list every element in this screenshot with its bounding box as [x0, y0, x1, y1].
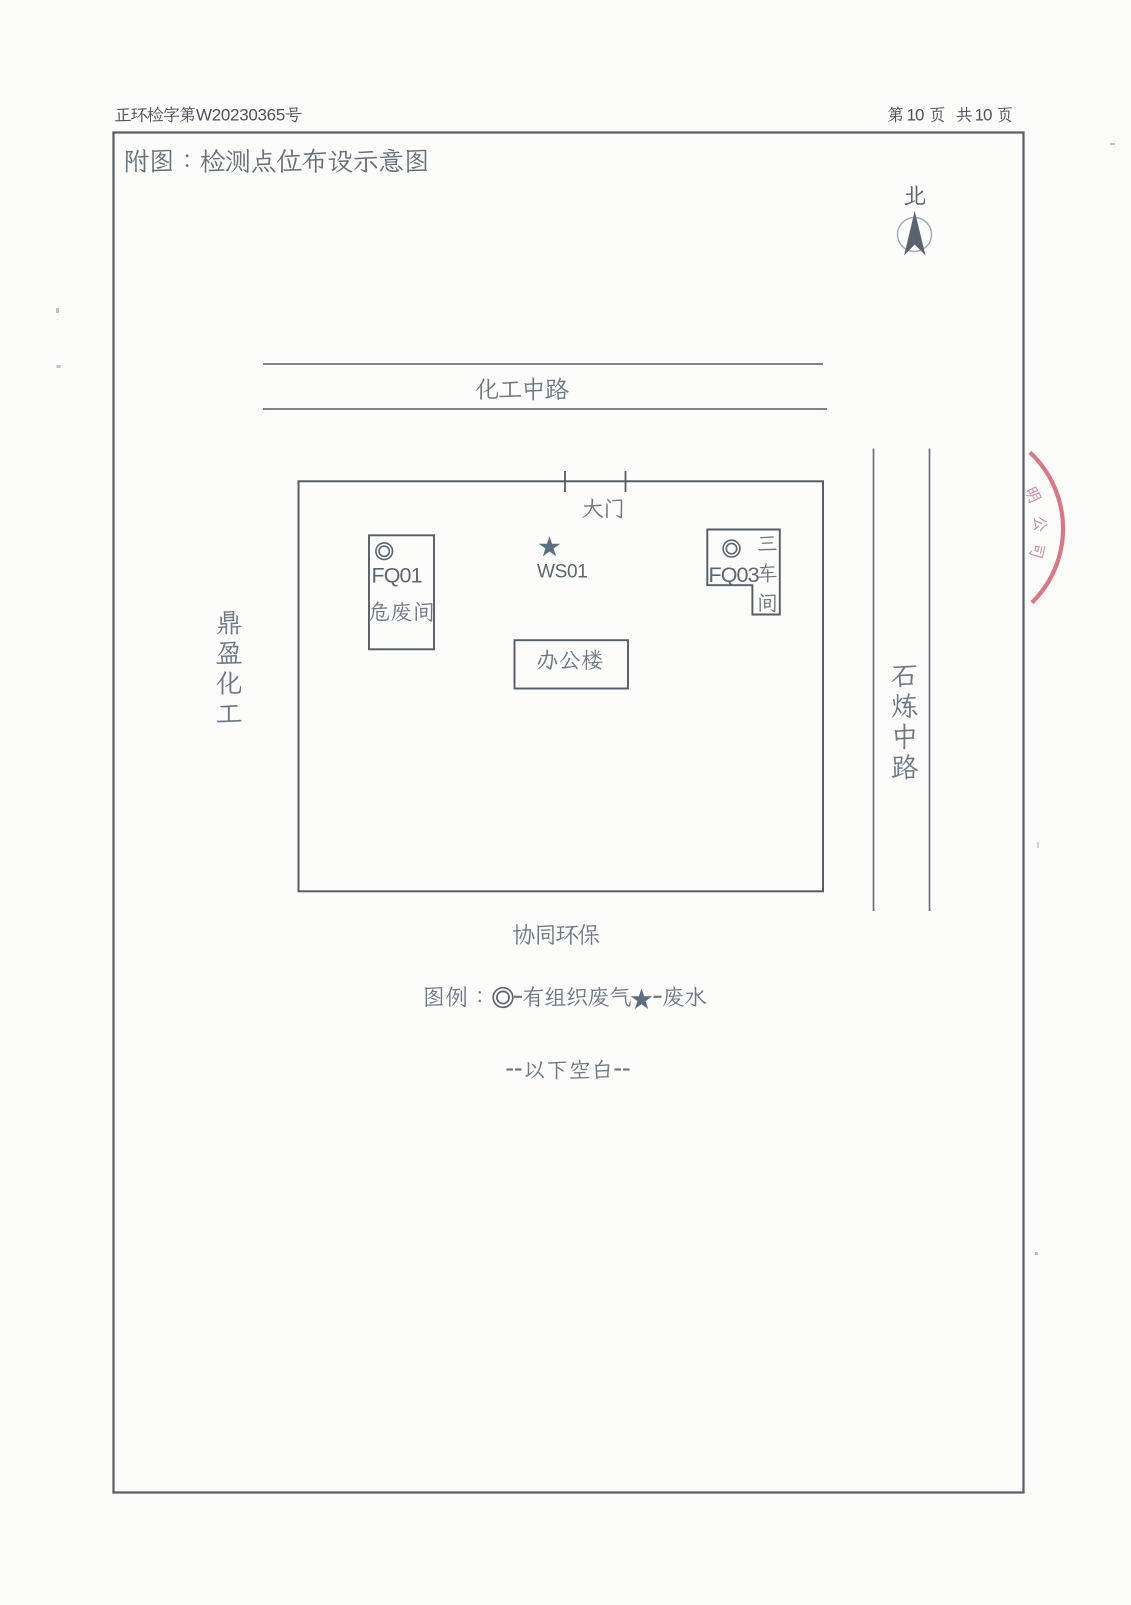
svg-text:WS01: WS01: [537, 562, 588, 583]
svg-text:FQ03: FQ03: [709, 563, 760, 587]
svg-text:10: 10: [907, 106, 924, 125]
svg-text:10: 10: [975, 106, 992, 125]
svg-text:FQ01: FQ01: [372, 564, 422, 588]
svg-text:W20230365: W20230365: [196, 106, 285, 125]
